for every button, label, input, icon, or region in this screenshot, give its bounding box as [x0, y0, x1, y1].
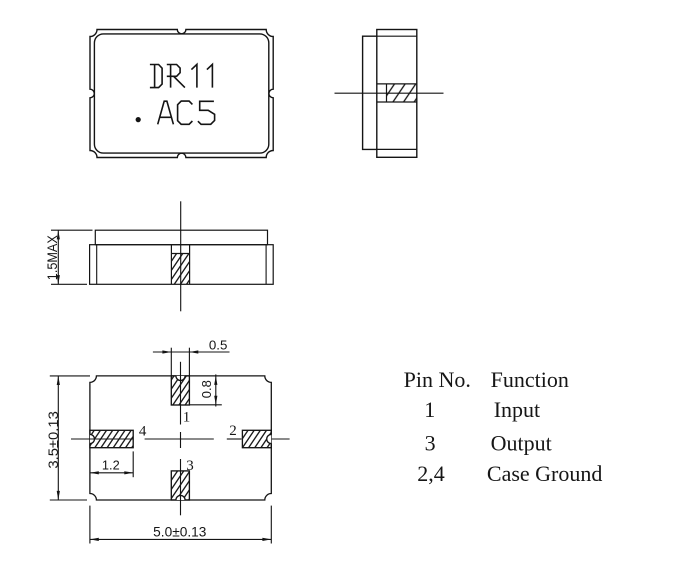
svg-text:1.2: 1.2	[102, 457, 120, 472]
svg-text:5.0±0.13: 5.0±0.13	[153, 524, 206, 539]
svg-text:3: 3	[186, 458, 194, 474]
svg-text:1: 1	[424, 397, 435, 422]
svg-text:Input: Input	[494, 397, 540, 422]
svg-text:1.5MAX: 1.5MAX	[45, 235, 60, 280]
svg-text:0.8: 0.8	[199, 380, 214, 398]
svg-text:4: 4	[139, 424, 147, 440]
svg-text:3.5±0.13: 3.5±0.13	[46, 411, 61, 469]
svg-text:Pin No.: Pin No.	[404, 367, 471, 392]
svg-text:0.5: 0.5	[209, 338, 228, 353]
svg-text:2,4: 2,4	[417, 461, 445, 486]
svg-text:Function: Function	[491, 367, 569, 392]
svg-text:1: 1	[183, 410, 191, 426]
svg-text:2: 2	[229, 423, 237, 439]
svg-text:Case Ground: Case Ground	[487, 461, 602, 486]
svg-text:Output: Output	[491, 431, 552, 456]
svg-text:3: 3	[425, 431, 436, 456]
